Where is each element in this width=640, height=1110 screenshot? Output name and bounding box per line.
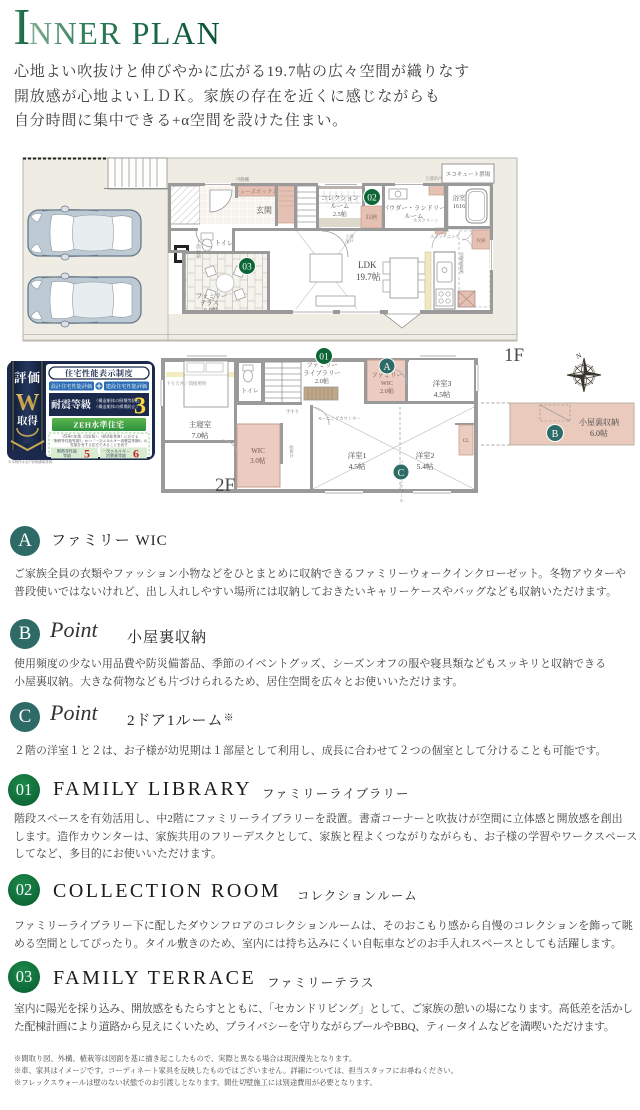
svg-text:「ZEHの定義（改定版）」（経済産業省）における: 「ZEHの定義（改定版）」（経済産業省）における	[60, 434, 139, 439]
svg-text:耐震等級: 耐震等級	[51, 398, 91, 411]
svg-text:手すり: 手すり	[286, 408, 299, 415]
svg-text:19.7帖: 19.7帖	[356, 271, 381, 282]
svg-text:性能を有する住宅であることを表す: 性能を有する住宅であることを表す	[70, 442, 128, 447]
svg-text:2F: 2F	[215, 475, 235, 496]
svg-text:パウダー・ランドリー: パウダー・ランドリー	[383, 204, 446, 212]
svg-text:C: C	[398, 468, 405, 479]
svg-text:01: 01	[319, 353, 329, 363]
svg-text:LDK: LDK	[358, 260, 377, 270]
svg-text:吹抜け: 吹抜け	[289, 444, 295, 460]
svg-text:コレクション: コレクション	[321, 194, 359, 202]
svg-text:03: 03	[242, 263, 252, 273]
svg-text:下り天井／間接照明: 下り天井／間接照明	[166, 380, 207, 387]
svg-text:トイレ: トイレ	[241, 388, 259, 395]
svg-text:洋室1: 洋室1	[348, 450, 367, 460]
svg-text:ファミリー: ファミリー	[196, 292, 227, 300]
svg-text:5: 5	[84, 447, 90, 461]
svg-text:6: 6	[133, 447, 139, 461]
svg-text:収納: 収納	[366, 213, 378, 221]
svg-text:A: A	[383, 362, 391, 373]
svg-text:収納: 収納	[477, 237, 486, 244]
svg-text:上部吊戸: 上部吊戸	[425, 175, 443, 182]
svg-text:2.5帖: 2.5帖	[333, 209, 348, 218]
svg-text:玄関: 玄関	[256, 205, 272, 215]
svg-text:洋室2: 洋室2	[416, 450, 435, 460]
svg-text:評価: 評価	[14, 370, 41, 385]
svg-text:ルーム: ルーム	[331, 203, 350, 210]
svg-text:モーニングカウンター: モーニングカウンター	[318, 415, 361, 422]
svg-text:可動棚: 可動棚	[236, 176, 250, 183]
svg-text:5.4帖: 5.4帖	[417, 461, 434, 471]
svg-text:テラス: テラス	[200, 299, 219, 307]
svg-text:6.0帖: 6.0帖	[590, 428, 608, 438]
svg-text:エコキュート置場: エコキュート置場	[446, 170, 491, 178]
svg-text:トイレ: トイレ	[215, 239, 234, 247]
svg-text:N: N	[575, 351, 583, 360]
svg-text:WIC: WIC	[381, 380, 393, 387]
svg-text:ZEH水準住宅: ZEH水準住宅	[73, 420, 124, 430]
svg-text:4.5帖: 4.5帖	[349, 461, 366, 471]
svg-text:02: 02	[367, 194, 377, 204]
svg-text:2.0帖: 2.0帖	[380, 386, 395, 395]
svg-text:B: B	[552, 429, 559, 440]
svg-text:2.0帖: 2.0帖	[315, 376, 330, 385]
svg-text:洋室3: 洋室3	[433, 378, 452, 388]
svg-text:W: W	[16, 390, 40, 416]
svg-text:3.0帖: 3.0帖	[250, 456, 266, 465]
svg-text:1616: 1616	[453, 203, 466, 210]
svg-text:3: 3	[134, 394, 146, 420]
svg-text:消費量等級: 消費量等級	[106, 452, 126, 458]
svg-text:土間収納: 土間収納	[196, 239, 202, 260]
svg-text:住宅性能表示制度: 住宅性能表示制度	[65, 368, 133, 378]
svg-text:小屋裏収納: 小屋裏収納	[579, 417, 619, 427]
svg-text:ライブラリー: ライブラリー	[303, 369, 340, 377]
svg-text:WIC: WIC	[251, 447, 265, 455]
svg-text:シューズボックス: シューズボックス	[234, 188, 278, 196]
svg-text:「断熱等性能等級5」かつ「一次エネルギー消費量等級6」の: 「断熱等性能等級5」かつ「一次エネルギー消費量等級6」の	[50, 438, 147, 443]
svg-text:取得: 取得	[17, 414, 38, 427]
svg-text:主寝室: 主寝室	[189, 419, 212, 429]
svg-text:建設住宅性能評価: 建設住宅性能評価	[106, 382, 148, 390]
svg-text:4.5帖: 4.5帖	[434, 389, 451, 399]
svg-text:吊戸: 吊戸	[345, 238, 354, 245]
svg-text:CL: CL	[463, 439, 469, 444]
svg-text:等級: 等級	[63, 452, 71, 458]
svg-text:浴室: 浴室	[453, 193, 466, 202]
svg-text:7.0帖: 7.0帖	[192, 430, 209, 440]
svg-text:設計住宅性能評価: 設計住宅性能評価	[51, 382, 93, 390]
svg-text:冷蔵庫置場: 冷蔵庫置場	[459, 251, 465, 275]
svg-text:※本物件は全戸評価書取得済: ※本物件は全戸評価書取得済	[8, 459, 53, 464]
